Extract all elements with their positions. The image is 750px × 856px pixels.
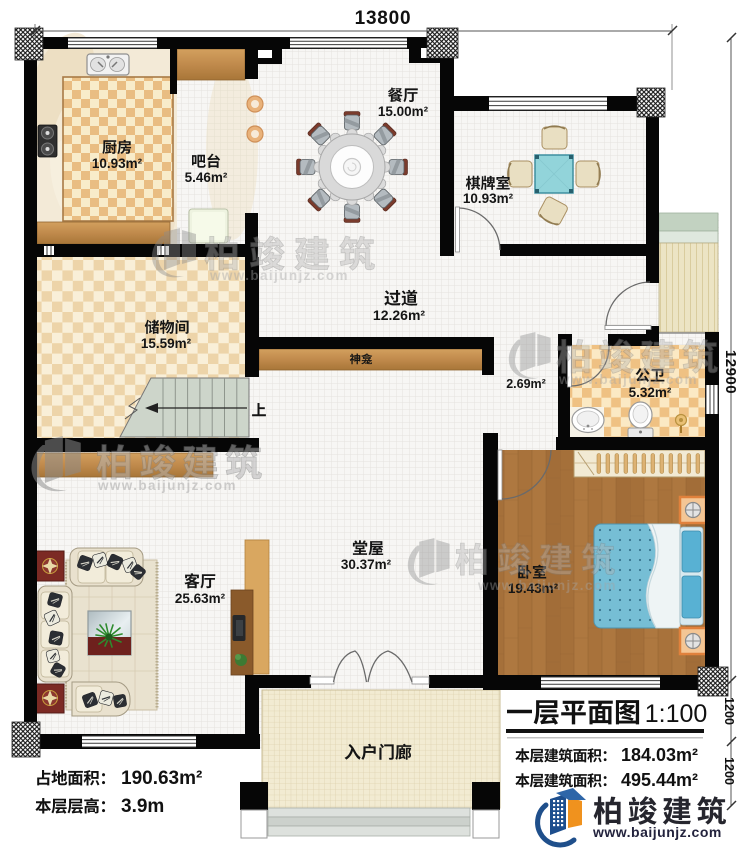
- svg-text:www.baijunjz.com: www.baijunjz.com: [558, 372, 698, 387]
- svg-text:15.59m²: 15.59m²: [141, 336, 192, 351]
- svg-text:13800: 13800: [355, 8, 412, 29]
- svg-text:12900: 12900: [722, 350, 739, 394]
- svg-text:3.9m: 3.9m: [121, 796, 164, 817]
- svg-text:184.03m²: 184.03m²: [621, 745, 698, 765]
- svg-text:www.baijunjz.com: www.baijunjz.com: [97, 478, 237, 493]
- svg-text:1200: 1200: [722, 757, 736, 785]
- svg-text:25.63m²: 25.63m²: [175, 591, 226, 606]
- svg-text:www.baijunjz.com: www.baijunjz.com: [477, 578, 617, 593]
- svg-text:1200: 1200: [722, 697, 736, 725]
- svg-text:2.69m²: 2.69m²: [506, 377, 546, 391]
- svg-text:10.93m²: 10.93m²: [463, 191, 514, 206]
- svg-text:30.37m²: 30.37m²: [341, 557, 392, 572]
- svg-text:12.26m²: 12.26m²: [373, 307, 425, 323]
- svg-text:10.93m²: 10.93m²: [92, 156, 143, 171]
- svg-text:www.baijunjz.com: www.baijunjz.com: [592, 824, 722, 840]
- svg-text:190.63m²: 190.63m²: [121, 768, 202, 789]
- svg-text:5.46m²: 5.46m²: [185, 170, 228, 185]
- svg-text:5.32m²: 5.32m²: [629, 385, 672, 400]
- svg-text:495.44m²: 495.44m²: [621, 770, 698, 790]
- svg-text:15.00m²: 15.00m²: [378, 104, 429, 119]
- svg-text:www.baijunjz.com: www.baijunjz.com: [209, 268, 349, 283]
- svg-text:1:100: 1:100: [645, 700, 708, 728]
